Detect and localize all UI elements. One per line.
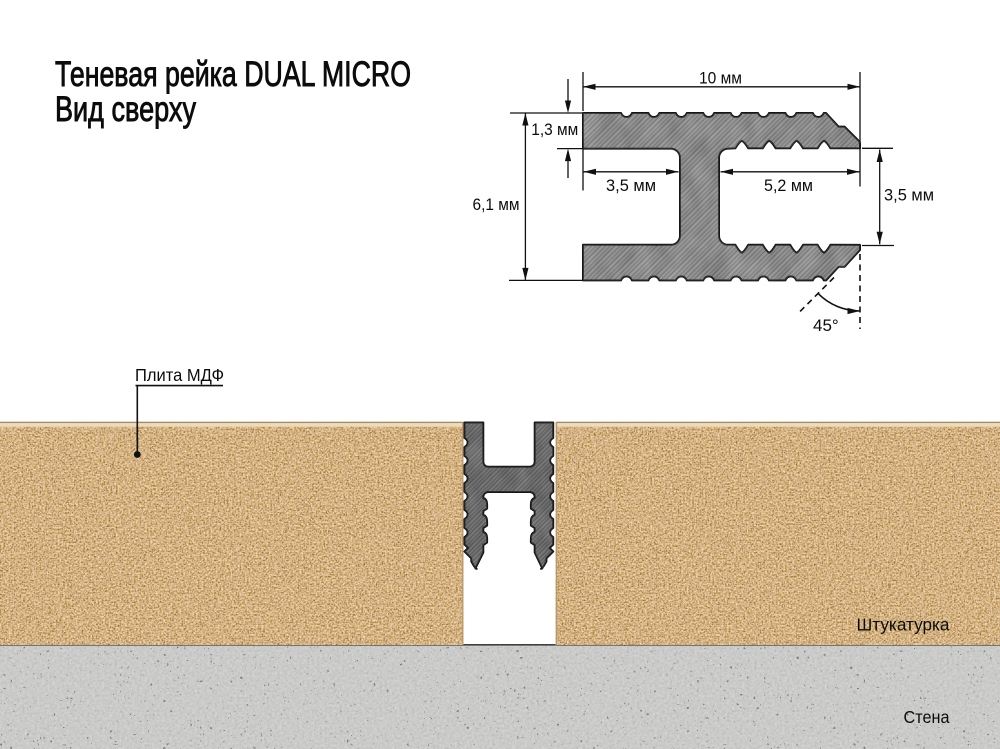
svg-text:Штукатурка: Штукатурка (857, 615, 950, 635)
svg-text:Теневая рейка DUAL MICRO: Теневая рейка DUAL MICRO (55, 55, 411, 94)
svg-text:1,3 мм: 1,3 мм (531, 120, 578, 139)
svg-text:Вид сверху: Вид сверху (55, 90, 196, 129)
svg-text:45°: 45° (813, 316, 839, 335)
svg-text:3,5 мм: 3,5 мм (606, 176, 656, 195)
svg-text:5,2 мм: 5,2 мм (764, 176, 813, 195)
svg-text:Плита МДФ: Плита МДФ (135, 365, 224, 385)
svg-text:3,5 мм: 3,5 мм (884, 186, 934, 205)
svg-text:10 мм: 10 мм (699, 69, 742, 88)
svg-text:6,1 мм: 6,1 мм (473, 195, 520, 214)
svg-text:Стена: Стена (904, 707, 950, 727)
